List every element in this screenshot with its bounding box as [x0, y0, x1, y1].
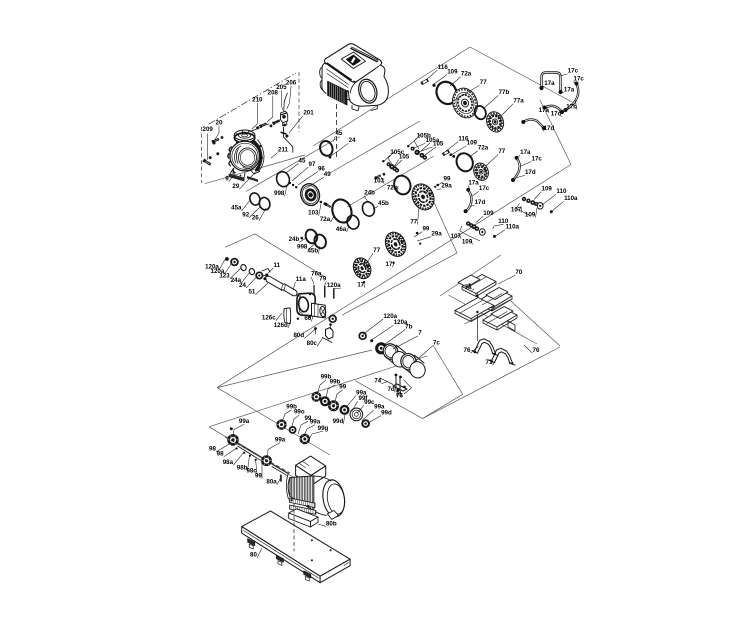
svg-text:26: 26 [252, 215, 259, 222]
svg-text:126d: 126d [274, 322, 288, 329]
svg-text:11a: 11a [296, 276, 307, 283]
svg-text:201: 201 [303, 110, 314, 117]
svg-text:7b: 7b [405, 323, 412, 330]
svg-text:45a: 45a [231, 205, 242, 212]
svg-text:17: 17 [386, 261, 393, 268]
svg-text:76: 76 [396, 393, 403, 400]
svg-text:72a: 72a [461, 71, 472, 78]
svg-text:77: 77 [373, 247, 380, 254]
svg-text:99d: 99d [333, 418, 344, 425]
svg-text:29a: 29a [441, 183, 452, 190]
svg-text:120a: 120a [327, 282, 341, 289]
svg-text:99: 99 [255, 472, 262, 479]
svg-text:45b: 45b [378, 200, 389, 207]
svg-text:99a: 99a [239, 418, 250, 425]
svg-text:17a: 17a [520, 149, 531, 156]
svg-text:103: 103 [308, 210, 319, 217]
svg-text:17c: 17c [479, 185, 490, 192]
svg-text:98: 98 [209, 446, 216, 453]
svg-text:74: 74 [374, 378, 381, 385]
svg-text:7d: 7d [387, 386, 394, 393]
svg-text:998: 998 [274, 190, 285, 197]
svg-text:17d: 17d [475, 199, 486, 206]
svg-text:110a: 110a [506, 223, 520, 230]
svg-text:107: 107 [451, 233, 462, 240]
svg-text:211: 211 [278, 147, 289, 154]
svg-text:24: 24 [349, 137, 356, 144]
svg-text:72b: 72b [387, 184, 398, 191]
svg-text:99: 99 [444, 176, 451, 183]
svg-text:99o: 99o [294, 409, 305, 416]
svg-text:17c: 17c [532, 155, 543, 162]
svg-text:20: 20 [216, 120, 223, 127]
svg-text:24b: 24b [289, 236, 300, 243]
svg-text:17c: 17c [568, 68, 579, 75]
svg-text:77: 77 [480, 79, 487, 86]
svg-text:79: 79 [319, 275, 326, 282]
svg-text:105: 105 [399, 153, 410, 160]
svg-text:7: 7 [418, 330, 422, 337]
svg-text:7c: 7c [433, 340, 440, 347]
svg-text:17a: 17a [564, 87, 575, 94]
svg-text:24: 24 [239, 282, 246, 289]
svg-text:45b: 45b [307, 248, 318, 255]
svg-text:29a: 29a [431, 231, 442, 238]
svg-text:17a: 17a [468, 179, 479, 186]
svg-text:51: 51 [248, 289, 255, 296]
svg-text:107: 107 [511, 206, 522, 213]
svg-text:109: 109 [483, 210, 494, 217]
svg-text:109: 109 [542, 186, 553, 193]
svg-text:109: 109 [447, 68, 458, 75]
svg-text:11: 11 [274, 262, 281, 269]
svg-text:29: 29 [232, 183, 239, 190]
svg-text:123: 123 [219, 273, 230, 280]
svg-text:209: 209 [203, 126, 214, 133]
svg-text:98a: 98a [223, 459, 234, 466]
svg-text:24b: 24b [364, 190, 375, 197]
svg-text:77a: 77a [513, 98, 524, 105]
svg-text:105: 105 [433, 141, 444, 148]
svg-text:109: 109 [525, 211, 536, 218]
svg-text:80a: 80a [266, 479, 277, 486]
svg-text:80: 80 [250, 552, 257, 559]
svg-text:17d: 17d [544, 125, 555, 132]
svg-text:17d: 17d [525, 169, 536, 176]
svg-text:46a: 46a [336, 226, 347, 233]
svg-text:66: 66 [304, 315, 311, 322]
svg-text:71: 71 [486, 359, 493, 366]
svg-text:110a: 110a [564, 195, 578, 202]
svg-text:97: 97 [309, 161, 316, 168]
svg-text:17a: 17a [544, 80, 555, 87]
svg-text:17b: 17b [566, 104, 577, 111]
svg-text:17c: 17c [551, 111, 562, 118]
svg-text:92: 92 [242, 211, 249, 218]
svg-text:99: 99 [422, 225, 429, 232]
svg-text:998: 998 [297, 244, 308, 251]
svg-text:80d: 80d [293, 332, 304, 339]
svg-text:17a: 17a [539, 107, 550, 114]
svg-text:45: 45 [299, 157, 306, 164]
svg-text:206: 206 [286, 80, 297, 87]
svg-text:76: 76 [533, 347, 540, 354]
svg-text:77b: 77b [499, 89, 510, 96]
svg-text:49: 49 [324, 171, 331, 178]
svg-text:110: 110 [556, 188, 567, 195]
svg-text:17: 17 [357, 282, 364, 289]
svg-text:76: 76 [464, 347, 471, 354]
svg-text:17c: 17c [574, 75, 585, 82]
svg-text:72a: 72a [478, 145, 489, 152]
svg-text:72a: 72a [320, 216, 331, 223]
svg-text:77: 77 [498, 148, 505, 155]
svg-text:109: 109 [467, 140, 478, 147]
svg-text:99d: 99d [381, 409, 392, 416]
svg-text:45: 45 [335, 130, 342, 137]
svg-text:126c: 126c [262, 314, 276, 321]
svg-text:99a: 99a [275, 436, 286, 443]
svg-text:7a: 7a [465, 284, 472, 291]
svg-text:99g: 99g [318, 425, 329, 432]
svg-text:80c: 80c [307, 340, 318, 347]
svg-text:99: 99 [339, 384, 346, 391]
svg-text:80b: 80b [326, 520, 337, 527]
svg-text:98: 98 [217, 451, 224, 458]
svg-text:70: 70 [515, 269, 522, 276]
svg-text:210: 210 [252, 97, 263, 104]
svg-text:77: 77 [410, 218, 417, 225]
